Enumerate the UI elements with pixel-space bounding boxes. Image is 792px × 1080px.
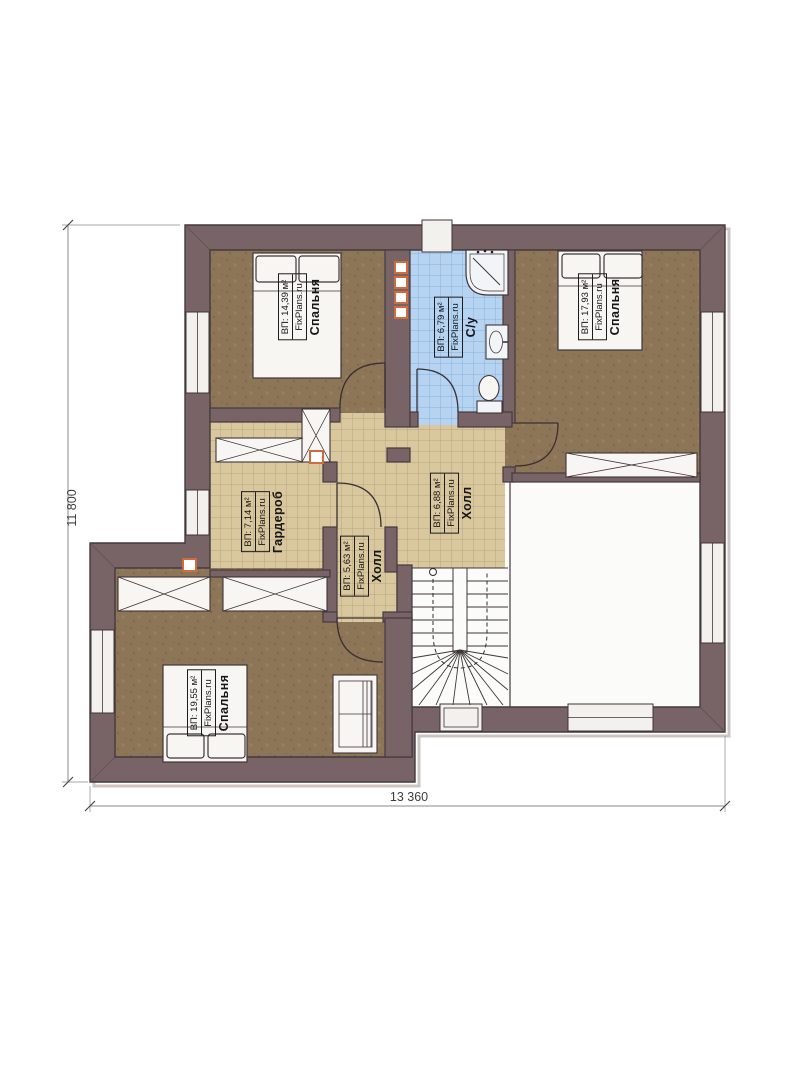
label-box: ВП: 7,14 м² FixPlans.ru xyxy=(241,491,270,552)
room-floor-empty-room xyxy=(505,478,707,710)
label-box: ВП: 14,39 м² FixPlans.ru xyxy=(278,274,307,341)
vent-mark xyxy=(395,277,407,288)
wall-wardrobe-bottom xyxy=(210,570,330,577)
room-name: Гардероб xyxy=(271,491,285,553)
room-label-bedroom-top-left: ВП: 14,39 м² FixPlans.ru Спальня xyxy=(278,274,322,341)
label-box: ВП: 6,88 м² FixPlans.ru xyxy=(430,472,459,533)
wall-hall-small-right xyxy=(385,527,397,572)
room-area: ВП: 7,14 м² xyxy=(242,492,256,551)
room-label-bedroom-top-right: ВП: 17,93 м² FixPlans.ru Спальня xyxy=(578,274,622,341)
wall-stub xyxy=(410,412,418,427)
room-name: С/у xyxy=(464,317,478,338)
dimension-height: 11 800 xyxy=(65,489,79,526)
label-box: ВП: 5,63 м² FixPlans.ru xyxy=(340,535,369,596)
room-area: ВП: 5,63 м² xyxy=(341,536,355,595)
room-name: Спальня xyxy=(608,279,622,336)
room-label-hall-small: ВП: 5,63 м² FixPlans.ru Холл xyxy=(340,535,384,596)
room-area: ВП: 6,88 м² xyxy=(431,473,445,532)
wall-bathroom-bottom xyxy=(458,412,512,427)
floor-plan-page: ВП: 14,39 м² FixPlans.ru Спальня ВП: 6,7… xyxy=(0,0,792,1080)
label-box: ВП: 19,55 м² FixPlans.ru xyxy=(187,670,216,737)
desk xyxy=(333,675,377,753)
watermark: FixPlans.ru xyxy=(445,473,458,532)
vent-mark xyxy=(183,559,196,571)
vent-mark xyxy=(310,451,323,463)
watermark: FixPlans.ru xyxy=(256,492,269,551)
wall-bedroom-bottom-right xyxy=(385,618,412,757)
vent-mark xyxy=(395,262,407,273)
watermark: FixPlans.ru xyxy=(355,536,368,595)
pillow xyxy=(208,734,245,758)
stair-walkline-start xyxy=(430,569,437,576)
watermark: FixPlans.ru xyxy=(449,297,462,356)
chimney xyxy=(422,220,452,252)
room-name: Холл xyxy=(370,550,384,583)
room-label-wardrobe: ВП: 7,14 м² FixPlans.ru Гардероб xyxy=(241,491,285,553)
wall-wardrobe-right xyxy=(323,462,337,482)
room-name: Спальня xyxy=(308,279,322,336)
vent-mark xyxy=(395,292,407,303)
label-box: ВП: 17,93 м² FixPlans.ru xyxy=(578,274,607,341)
vent-mark xyxy=(395,307,407,318)
room-label-bathroom: ВП: 6,79 м² FixPlans.ru С/у xyxy=(434,296,478,357)
watermark: FixPlans.ru xyxy=(593,275,606,340)
watermark: FixPlans.ru xyxy=(293,275,306,340)
room-area: ВП: 19,55 м² xyxy=(188,671,202,736)
label-box: ВП: 6,79 м² FixPlans.ru xyxy=(434,296,463,357)
room-label-hall: ВП: 6,88 м² FixPlans.ru Холл xyxy=(430,472,474,533)
room-label-bedroom-bottom: ВП: 19,55 м² FixPlans.ru Спальня xyxy=(187,670,231,737)
wall-stub xyxy=(323,612,337,622)
room-area: ВП: 14,39 м² xyxy=(279,275,293,340)
watermark: FixPlans.ru xyxy=(202,671,215,736)
toilet-tank xyxy=(477,401,502,413)
dimension-width: 13 360 xyxy=(390,790,428,804)
toilet-bowl xyxy=(479,376,499,401)
pillow xyxy=(167,734,204,758)
room-area: ВП: 17,93 м² xyxy=(579,275,593,340)
floor-plan-drawing xyxy=(0,0,792,1080)
room-name: Спальня xyxy=(217,675,231,732)
room-name: Холл xyxy=(460,487,474,520)
room-area: ВП: 6,79 м² xyxy=(435,297,449,356)
wall-stub xyxy=(387,448,410,462)
